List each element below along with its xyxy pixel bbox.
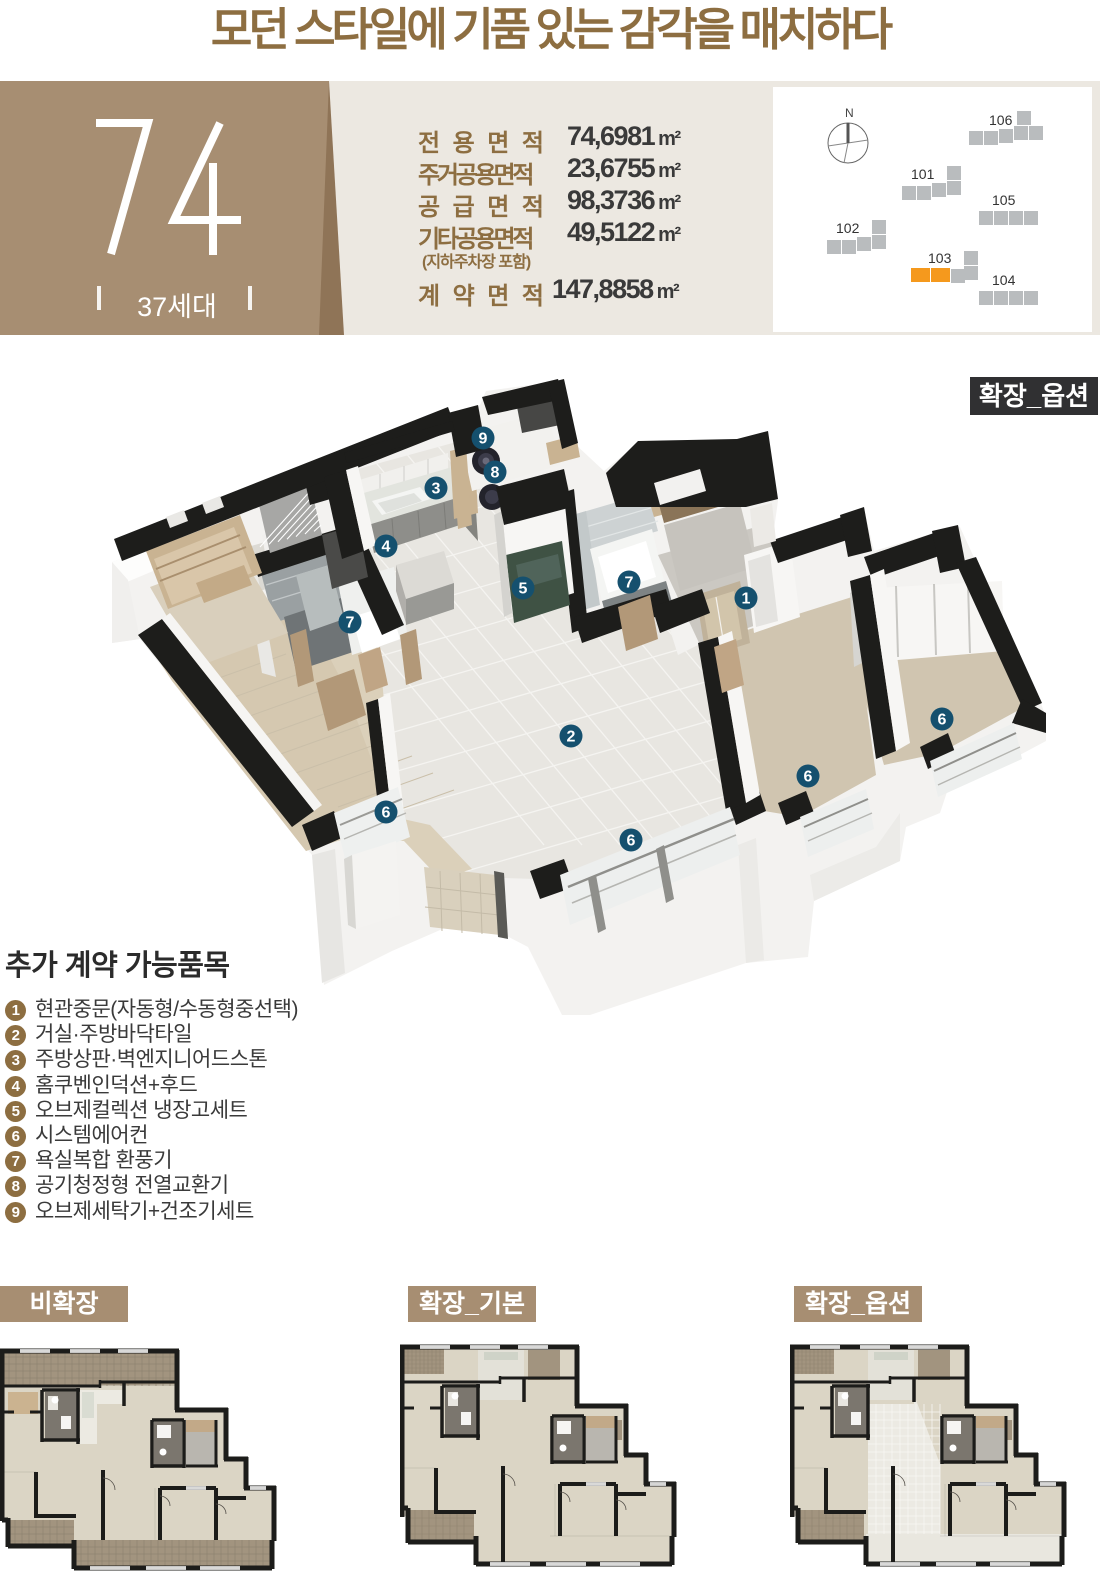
svg-text:3: 3: [432, 481, 441, 498]
svg-text:2: 2: [567, 729, 576, 746]
svg-text:N: N: [845, 106, 854, 120]
svg-text:6: 6: [804, 769, 813, 786]
svg-text:6: 6: [627, 833, 636, 850]
svg-text:102: 102: [836, 220, 860, 236]
svg-text:105: 105: [992, 192, 1016, 208]
svg-text:5: 5: [519, 581, 528, 598]
svg-text:104: 104: [992, 272, 1016, 288]
svg-text:7: 7: [625, 575, 634, 592]
svg-text:9: 9: [479, 431, 488, 448]
svg-text:8: 8: [491, 465, 500, 482]
svg-text:4: 4: [382, 539, 391, 556]
svg-text:7: 7: [346, 615, 355, 632]
svg-text:103: 103: [928, 250, 952, 266]
svg-text:6: 6: [382, 805, 391, 822]
svg-text:101: 101: [911, 166, 935, 182]
svg-text:1: 1: [742, 591, 751, 608]
svg-text:106: 106: [989, 112, 1013, 128]
svg-text:6: 6: [938, 712, 947, 729]
